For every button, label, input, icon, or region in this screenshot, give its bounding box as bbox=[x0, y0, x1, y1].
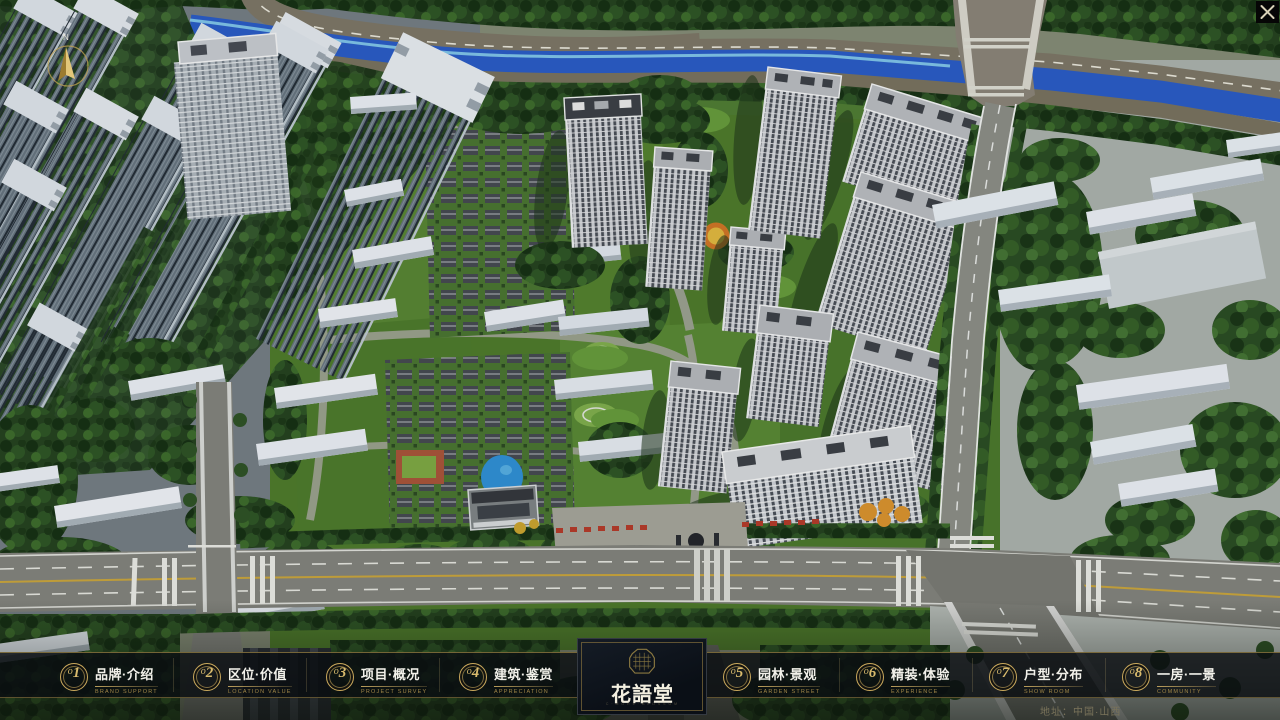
svg-text:N: N bbox=[63, 33, 69, 42]
